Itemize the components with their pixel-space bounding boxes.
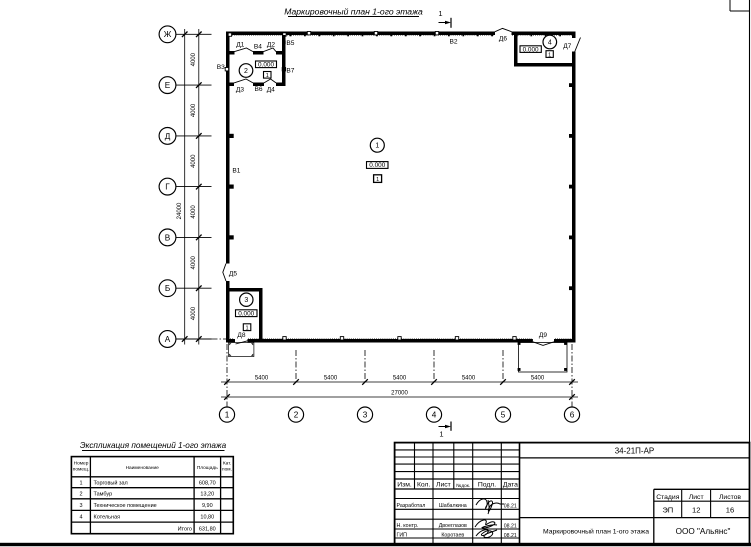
svg-text:Наименование: Наименование	[126, 465, 160, 471]
svg-text:Д6: Д6	[499, 36, 507, 43]
svg-text:1: 1	[79, 480, 82, 486]
svg-text:2: 2	[79, 491, 82, 497]
svg-text:Кол.: Кол.	[417, 481, 431, 488]
svg-text:В3: В3	[217, 64, 225, 71]
svg-text:Маркировочный план 1-ого этажа: Маркировочный план 1-ого этажа	[284, 6, 423, 16]
svg-text:608,70: 608,70	[199, 480, 216, 486]
svg-text:ГИП: ГИП	[397, 532, 408, 538]
svg-text:Торговый зал: Торговый зал	[94, 479, 128, 486]
svg-text:0.000: 0.000	[258, 61, 274, 68]
svg-text:Шабалкина: Шабалкина	[439, 503, 467, 509]
svg-text:08.21: 08.21	[504, 504, 517, 510]
svg-text:1: 1	[375, 143, 379, 150]
svg-text:пом.: пом.	[222, 468, 232, 473]
svg-text:1: 1	[376, 177, 379, 183]
svg-text:08.21: 08.21	[504, 533, 517, 539]
svg-text:4000: 4000	[191, 255, 197, 269]
svg-text:Маркировочный план 1-ого этажа: Маркировочный план 1-ого этажа	[543, 528, 649, 536]
svg-text:12: 12	[692, 506, 700, 515]
svg-text:А: А	[165, 335, 171, 344]
svg-text:В6: В6	[254, 86, 262, 93]
svg-text:В5: В5	[286, 40, 294, 47]
svg-text:Д9: Д9	[539, 332, 547, 339]
svg-text:4: 4	[548, 40, 552, 47]
svg-text:27000: 27000	[391, 390, 408, 396]
svg-text:0.000: 0.000	[523, 46, 539, 53]
svg-text:5400: 5400	[255, 375, 269, 381]
svg-text:5400: 5400	[531, 375, 545, 381]
svg-text:4000: 4000	[191, 205, 197, 219]
svg-text:2: 2	[244, 68, 248, 75]
svg-text:Ж: Ж	[164, 30, 172, 39]
svg-text:4000: 4000	[191, 103, 197, 117]
svg-text:4: 4	[79, 514, 82, 520]
svg-text:2: 2	[294, 411, 299, 420]
svg-text:В4: В4	[254, 44, 262, 51]
svg-text:5400: 5400	[462, 375, 476, 381]
svg-text:10,80: 10,80	[200, 514, 214, 520]
svg-text:Коротаев: Коротаев	[441, 532, 464, 538]
svg-text:В2: В2	[449, 39, 457, 46]
svg-text:3: 3	[244, 297, 248, 304]
svg-text:6: 6	[570, 411, 575, 420]
svg-text:24000: 24000	[177, 202, 183, 219]
svg-text:помещ.: помещ.	[73, 468, 90, 473]
svg-text:Лист: Лист	[689, 494, 704, 501]
svg-text:В7: В7	[286, 67, 294, 74]
svg-text:Котельная: Котельная	[94, 514, 121, 520]
svg-text:Д: Д	[165, 132, 171, 141]
svg-text:Разработал: Разработал	[397, 503, 426, 509]
svg-text:Площадь: Площадь	[197, 465, 218, 471]
svg-text:4: 4	[432, 411, 437, 420]
svg-text:Номер: Номер	[74, 461, 89, 467]
svg-text:631,80: 631,80	[199, 526, 216, 532]
svg-text:Техническое помещение: Техническое помещение	[94, 503, 157, 509]
svg-text:Изм.: Изм.	[397, 481, 412, 488]
svg-text:1: 1	[548, 52, 551, 58]
svg-text:1: 1	[438, 9, 442, 18]
svg-text:4000: 4000	[191, 154, 197, 168]
svg-text:Лист: Лист	[436, 481, 451, 488]
svg-text:Е: Е	[165, 81, 171, 90]
svg-text:Экспликация помещений 1-ого эт: Экспликация помещений 1-ого этажа	[80, 441, 227, 450]
svg-text:Д5: Д5	[229, 270, 237, 277]
svg-text:ЭП: ЭП	[662, 506, 673, 515]
svg-text:Стадия: Стадия	[656, 494, 679, 501]
svg-text:5400: 5400	[324, 375, 338, 381]
svg-text:Д3: Д3	[236, 86, 244, 93]
svg-text:1: 1	[266, 73, 269, 79]
svg-text:Тамбур: Тамбур	[94, 491, 113, 497]
svg-text:Д8: Д8	[237, 332, 245, 339]
svg-text:3: 3	[79, 503, 82, 509]
svg-text:4000: 4000	[191, 306, 197, 320]
svg-text:9,90: 9,90	[202, 503, 213, 509]
svg-text:1: 1	[245, 325, 248, 331]
svg-text:Д7: Д7	[563, 43, 571, 50]
svg-text:16: 16	[726, 506, 734, 515]
svg-text:13,20: 13,20	[200, 491, 214, 497]
svg-text:Д2: Д2	[267, 41, 275, 48]
svg-text:08.21: 08.21	[504, 523, 517, 529]
svg-text:Г: Г	[165, 183, 170, 192]
svg-text:34-21П-АР: 34-21П-АР	[615, 447, 655, 456]
svg-text:0.000: 0.000	[238, 310, 254, 317]
svg-text:ООО "Альянс": ООО "Альянс"	[676, 527, 731, 536]
svg-text:Итого: Итого	[178, 526, 192, 532]
svg-text:5: 5	[501, 411, 506, 420]
svg-text:Дата: Дата	[503, 481, 518, 488]
svg-text:Подл.: Подл.	[478, 481, 496, 488]
svg-text:Кат.: Кат.	[223, 461, 231, 467]
svg-text:4000: 4000	[191, 52, 197, 66]
svg-text:Д4: Д4	[267, 86, 275, 93]
svg-text:Двоеглазов: Двоеглазов	[439, 523, 467, 529]
svg-text:В: В	[165, 233, 171, 242]
svg-text:Б: Б	[165, 284, 170, 293]
svg-text:№док.: №док.	[456, 483, 470, 489]
svg-text:Н. контр.: Н. контр.	[397, 523, 419, 529]
svg-text:1: 1	[225, 411, 230, 420]
svg-text:3: 3	[363, 411, 368, 420]
svg-text:В1: В1	[232, 168, 240, 175]
svg-text:5400: 5400	[393, 375, 407, 381]
svg-text:Листов: Листов	[719, 494, 741, 501]
svg-text:0.000: 0.000	[369, 162, 385, 169]
svg-text:Д1: Д1	[236, 41, 244, 48]
svg-text:1: 1	[439, 430, 443, 439]
